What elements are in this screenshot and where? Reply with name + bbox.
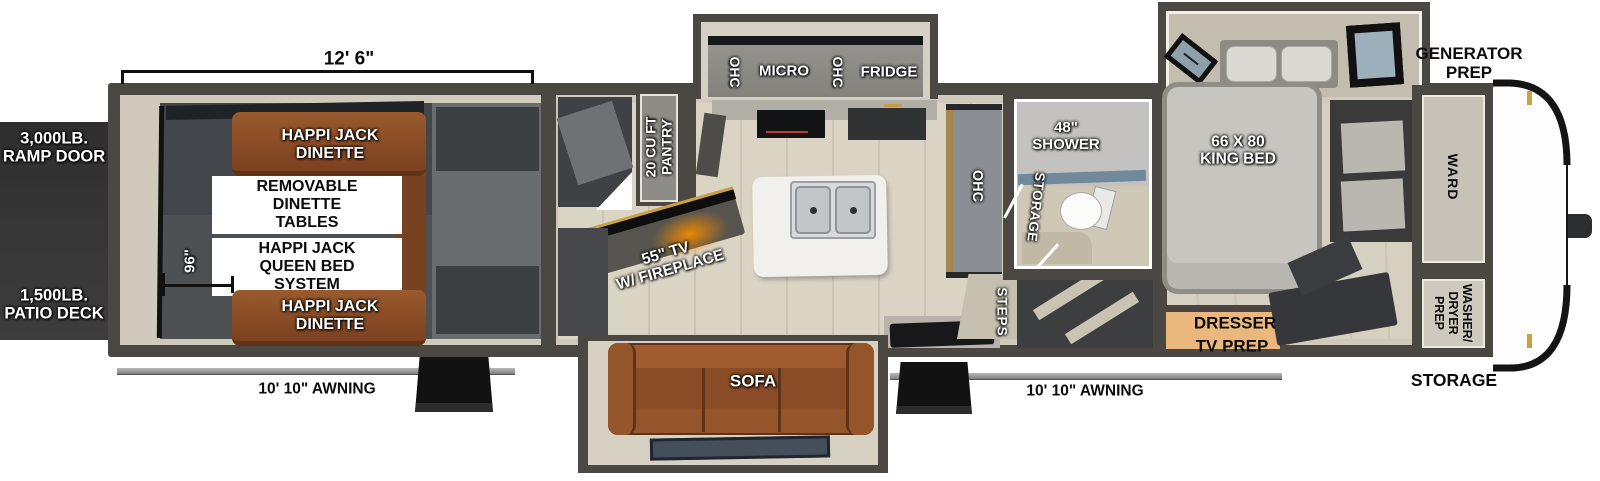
sofa-cushion-seam-1 — [702, 368, 705, 432]
sofa-armrest-left — [608, 343, 636, 435]
patio-deck-label: 1,500LB. PATIO DECK — [4, 287, 103, 324]
garage-depth-dim-label: 96" — [183, 249, 200, 273]
fridge-handle — [884, 104, 902, 107]
tv-prep-label: TV PREP — [1196, 336, 1269, 355]
generator-prep-label: GENERATOR PREP — [1415, 44, 1522, 82]
cooktop — [757, 110, 825, 138]
ohc-wall-label: OHC — [969, 170, 985, 202]
sink-drain-left — [810, 207, 817, 214]
fireplace-lower-cabinet — [558, 228, 608, 336]
fridge-footprint — [848, 108, 926, 140]
ohc-center-label: OHC — [829, 56, 845, 87]
ward-label: WARD — [1444, 154, 1460, 201]
steps-label: STEPS — [994, 287, 1009, 336]
fridge-label: FRIDGE — [861, 65, 918, 82]
stabilizer-jack-right — [896, 362, 972, 414]
garage-width-dim-tick-left — [121, 70, 124, 84]
garage-cabinet-bottom-right — [436, 266, 539, 334]
cooktop-burner-light — [766, 131, 808, 133]
sofa-rug — [650, 435, 830, 460]
bedroom-side-cabinet-panel-2 — [1341, 178, 1406, 231]
micro-label: MICRO — [759, 64, 809, 81]
pillow-right — [1281, 46, 1332, 82]
dinette-rear-label: HAPPI JACK DINETTE — [282, 298, 379, 334]
awning-left-label: 10' 10" AWNING — [258, 380, 375, 397]
garage-entry-wall — [541, 95, 556, 345]
sofa-cushion-seam-2 — [778, 368, 781, 432]
front-cap — [1480, 70, 1600, 400]
sofa-armrest-right — [846, 343, 874, 435]
washer-dryer-label: WASHER/ DRYER PREP — [1432, 284, 1474, 342]
pillow-left — [1226, 46, 1277, 82]
garage-width-dim-label: 12' 6" — [324, 48, 375, 69]
stabilizer-jack-left — [415, 356, 493, 412]
shower-label: 48" SHOWER — [1032, 120, 1100, 154]
sink-drain-right — [850, 207, 857, 214]
garage-width-dim-line — [122, 70, 533, 73]
bedroom-side-cabinet-panel-1 — [1341, 120, 1406, 173]
garage-depth-dim-line — [162, 284, 234, 287]
awning-right-label: 10' 10" AWNING — [1026, 382, 1143, 399]
bedroom-slide-window-right-glass — [1354, 31, 1395, 80]
dresser-label: DRESSER — [1194, 313, 1276, 332]
ohc-left-label: OHC — [726, 56, 742, 87]
toilet-bowl — [1060, 192, 1102, 230]
garage-depth-dim-tick-right — [231, 276, 234, 293]
king-bed-label: 66 X 80 KING BED — [1200, 134, 1276, 169]
pantry-side-wall — [682, 90, 696, 210]
ramp-door-label: 3,000LB. RAMP DOOR — [3, 130, 105, 167]
sofa-label: SOFA — [730, 371, 776, 390]
garage-cabinet-top-right — [436, 107, 539, 171]
queen-bed-label: HAPPI JACK QUEEN BED SYSTEM — [259, 240, 356, 294]
dinette-front-label: HAPPI JACK DINETTE — [282, 127, 379, 163]
front-storage-label: STORAGE — [1411, 371, 1497, 391]
removable-tables-label: REMOVABLE DINETTE TABLES — [256, 178, 357, 232]
pantry-label: 20 CU FT PANTRY — [643, 117, 674, 178]
ohc-wall-cabinet-wood-edge — [946, 110, 953, 272]
rv-floorplan: 3,000LB. RAMP DOOR 1,500LB. PATIO DECK 1… — [0, 0, 1600, 481]
garage-width-dim-tick-right — [531, 70, 534, 84]
